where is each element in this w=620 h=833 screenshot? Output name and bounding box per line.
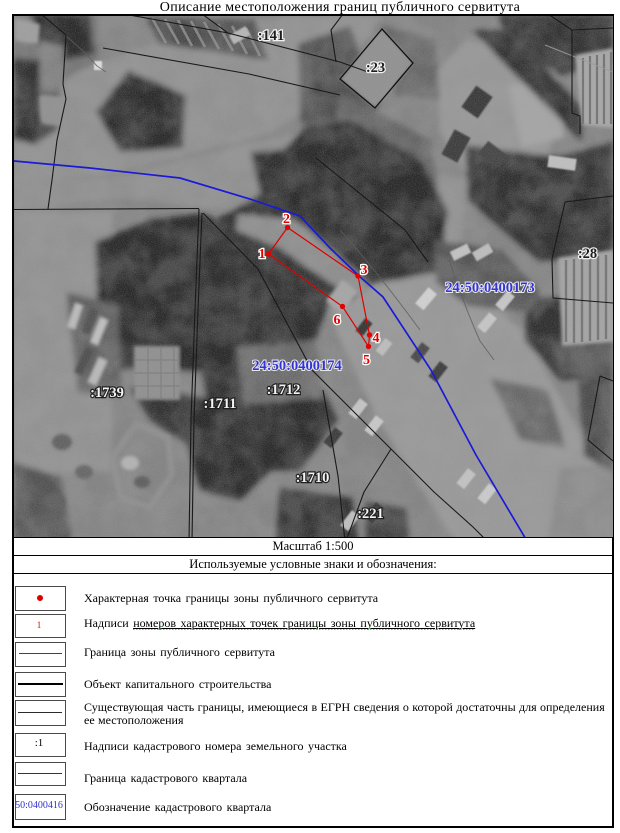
svg-text::23: :23 xyxy=(366,60,385,76)
svg-text:3: 3 xyxy=(361,263,368,278)
svg-text:24:50:0400173: 24:50:0400173 xyxy=(445,280,534,296)
svg-text::1712: :1712 xyxy=(267,382,301,398)
svg-text::1711: :1711 xyxy=(203,396,236,412)
svg-text::1739: :1739 xyxy=(90,385,124,401)
svg-text::28: :28 xyxy=(578,246,597,262)
svg-text::141: :141 xyxy=(258,28,285,44)
svg-text:4: 4 xyxy=(373,331,380,346)
svg-text:5: 5 xyxy=(363,353,370,368)
svg-text:2: 2 xyxy=(283,212,290,227)
svg-text::221: :221 xyxy=(357,506,384,522)
svg-text::1710: :1710 xyxy=(296,470,330,486)
svg-text:1: 1 xyxy=(259,247,266,262)
svg-text:24:50:0400174: 24:50:0400174 xyxy=(252,358,341,374)
svg-text:6: 6 xyxy=(334,313,341,328)
